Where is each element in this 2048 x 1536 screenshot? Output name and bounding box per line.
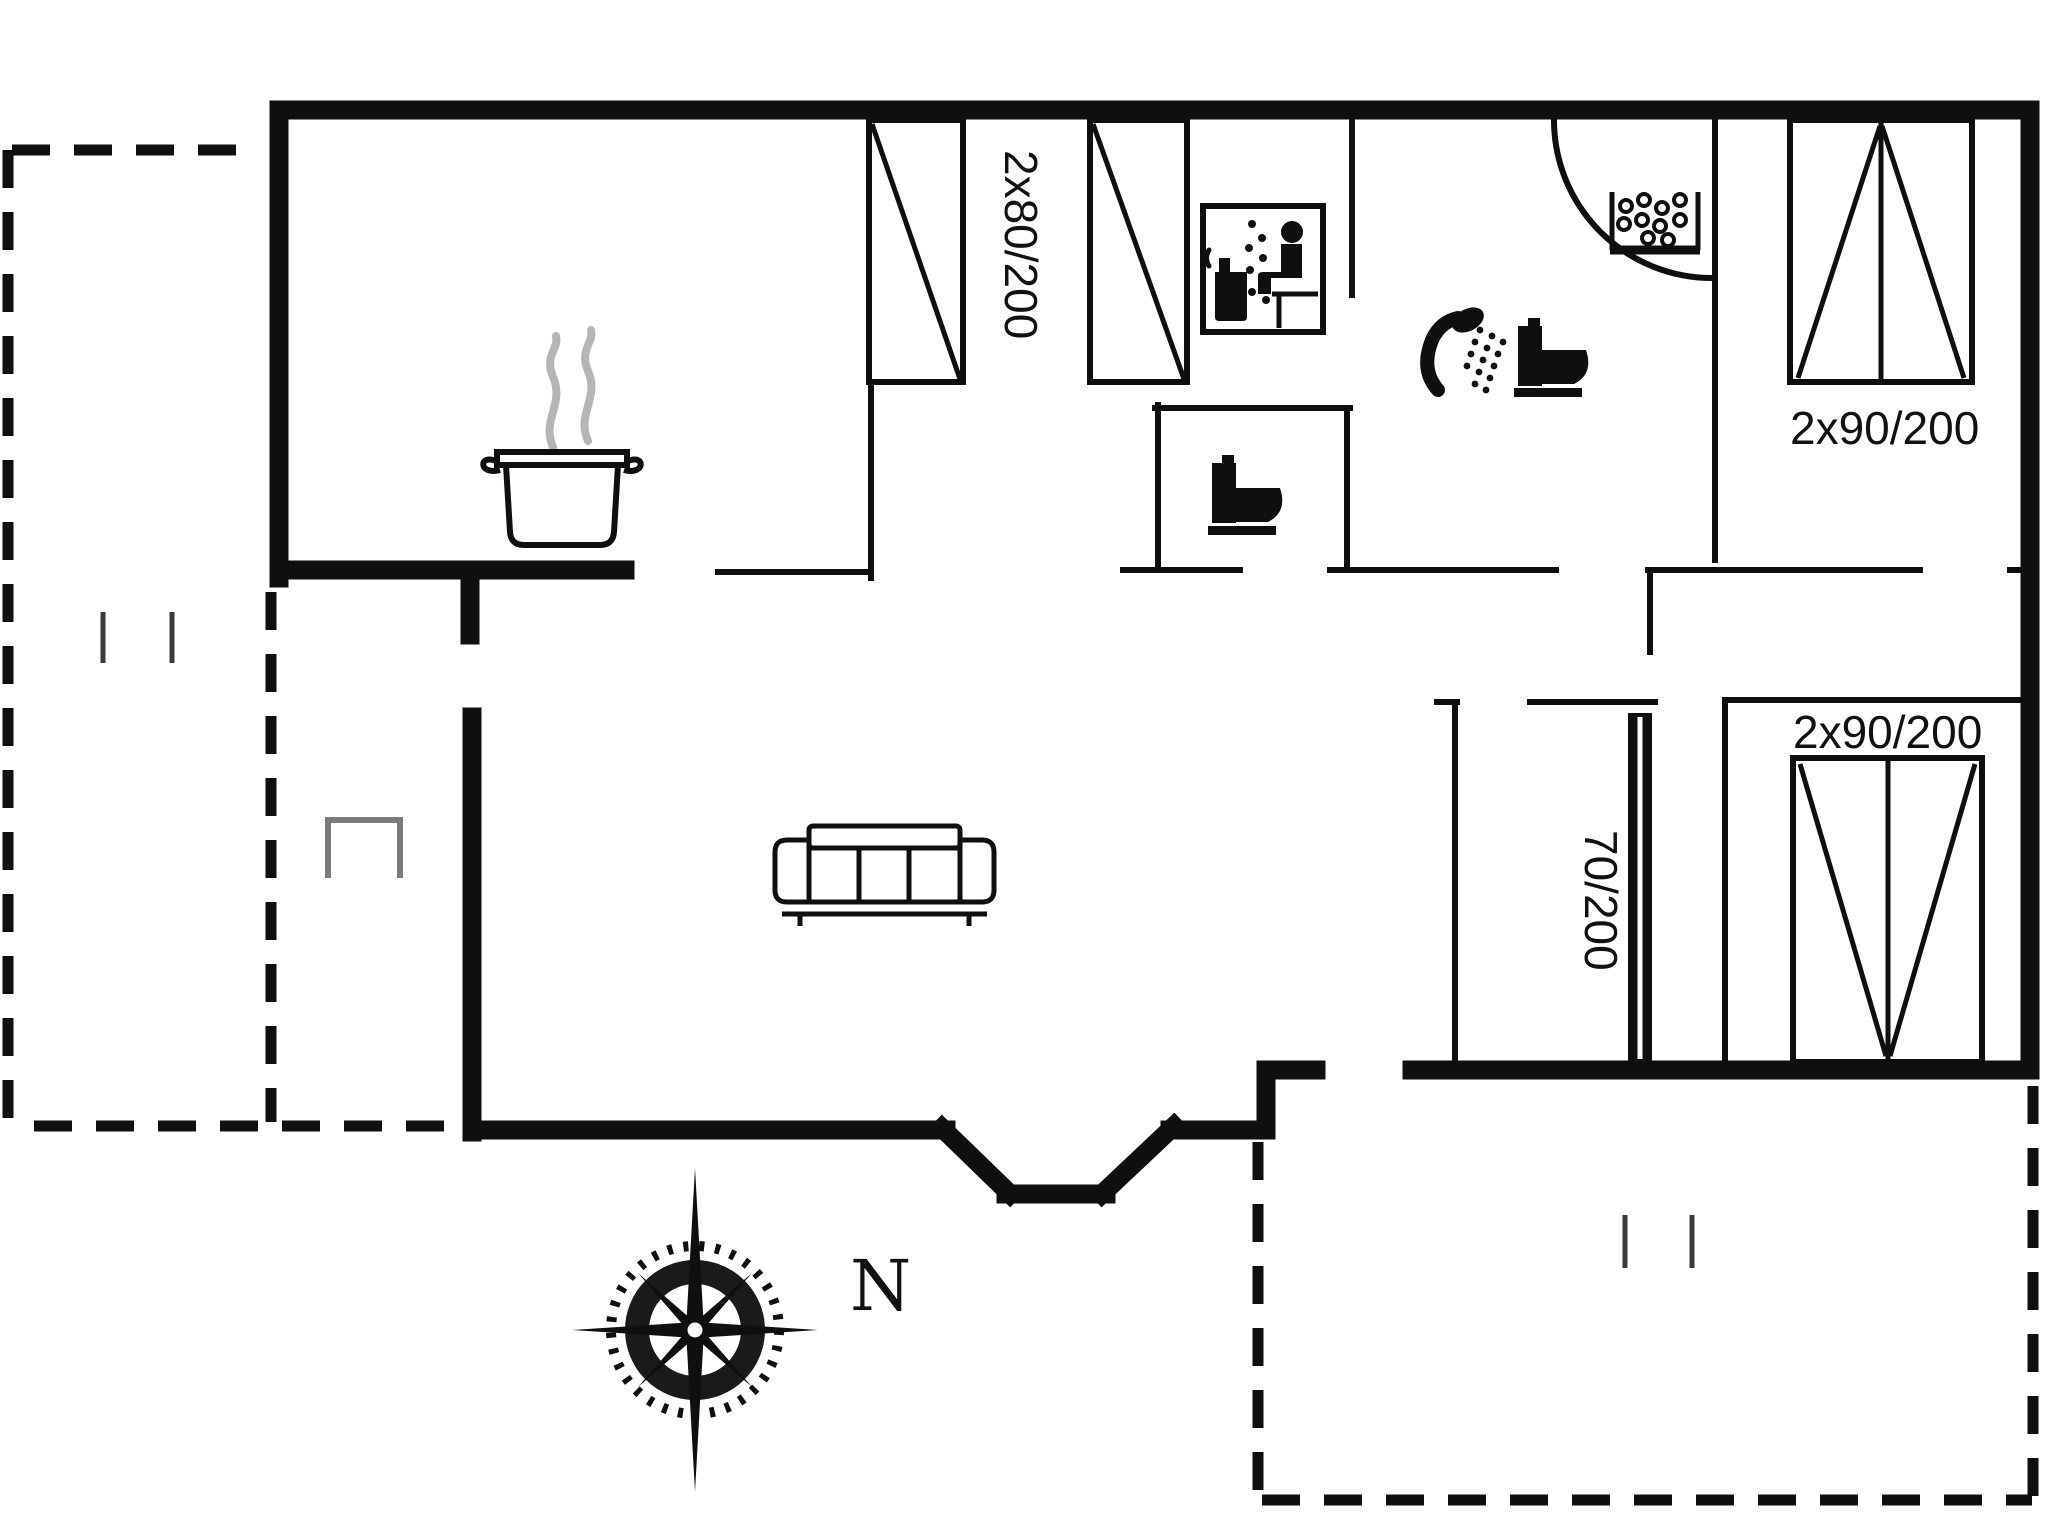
toilet-bowl — [1236, 488, 1282, 522]
sauna-icon — [1203, 206, 1323, 332]
compass-north-label: N — [850, 1245, 911, 1327]
terrace-outline-southeast — [1258, 1084, 2033, 1500]
sliding-door-label: 70/200 — [1575, 830, 1627, 971]
doorstep-bracket — [328, 820, 400, 878]
window-bottom-right: 2x90/200 — [1793, 706, 1982, 1062]
sauna-person-head — [1281, 221, 1303, 243]
window-top-right: 2x90/200 — [1790, 120, 1979, 454]
compass-hub — [686, 1321, 704, 1339]
terrace-west-furniture-marks — [103, 612, 172, 663]
sliding-door-70: 70/200 — [1575, 713, 1652, 1063]
toilet-tank — [1212, 463, 1236, 523]
floor-plan-page: 2x80/200 2x90/200 2x90/200 70/200 — [0, 0, 2048, 1536]
closet-doors-label: 2x80/200 — [995, 150, 1047, 339]
sofa-base — [782, 914, 987, 926]
sauna-bucket-steam — [1207, 250, 1210, 266]
sofa-back — [809, 826, 960, 848]
compass-rose-icon: N — [572, 1168, 911, 1492]
toilet-bowl — [1542, 350, 1588, 384]
terrace-se-furniture-marks — [1625, 1215, 1692, 1268]
window-top-right-label: 2x90/200 — [1790, 402, 1979, 454]
bay-right-diagonal — [1102, 1126, 1174, 1194]
toilet-tank — [1518, 326, 1542, 386]
sofa-armrest-left — [775, 840, 809, 902]
cooking-pot-icon — [483, 330, 641, 545]
sauna-bucket — [1215, 272, 1247, 321]
washbasin-icon — [1610, 192, 1700, 250]
basin-bubbles — [1618, 194, 1686, 246]
toilet-icon — [1514, 318, 1588, 397]
toilet-base — [1208, 526, 1276, 535]
pot-body — [506, 465, 618, 545]
sofa-cushions — [809, 848, 960, 902]
shower-spray-dots — [1464, 327, 1507, 394]
steam-wave-left — [550, 336, 557, 447]
shower-hose — [1427, 318, 1458, 390]
toilet-icon — [1208, 455, 1282, 535]
steam-wave-right — [585, 330, 592, 441]
terrace-outline-west — [8, 150, 456, 1126]
closet-doors-2x80: 2x80/200 — [869, 120, 1187, 382]
sofa-armrest-right — [960, 840, 994, 902]
sauna-bucket-spout — [1219, 258, 1230, 272]
toilet-base — [1514, 388, 1582, 397]
shower-icon — [1427, 302, 1506, 393]
floor-plan-drawing: 2x80/200 2x90/200 2x90/200 70/200 — [0, 0, 2048, 1536]
window-bottom-right-label: 2x90/200 — [1793, 706, 1982, 758]
sofa-icon — [775, 826, 994, 926]
